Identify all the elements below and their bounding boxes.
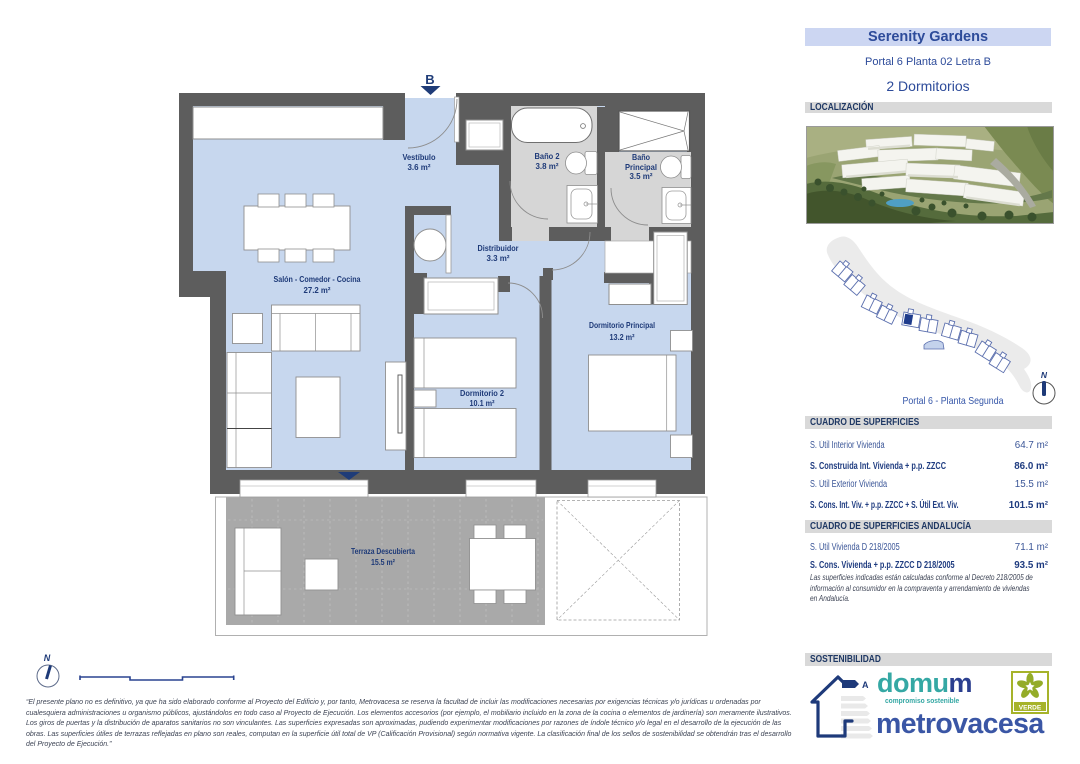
svg-text:3.3 m²: 3.3 m² — [487, 253, 510, 263]
svg-text:Vestíbulo: Vestíbulo — [403, 152, 436, 162]
svg-text:VERDE: VERDE — [1019, 705, 1042, 712]
svg-text:10.1 m²: 10.1 m² — [470, 398, 495, 408]
svg-text:N: N — [44, 653, 51, 663]
svg-text:15.5 m²: 15.5 m² — [371, 557, 395, 567]
svg-text:Baño: Baño — [632, 152, 650, 162]
svg-text:Dormitorio Principal: Dormitorio Principal — [589, 320, 655, 330]
svg-text:3.6 m²: 3.6 m² — [408, 162, 431, 172]
svg-text:27.2 m²: 27.2 m² — [304, 285, 331, 295]
svg-text:Dormitorio 2: Dormitorio 2 — [460, 388, 504, 398]
svg-text:Terraza Descubierta: Terraza Descubierta — [351, 546, 415, 556]
svg-text:Distribuidor: Distribuidor — [478, 243, 520, 253]
svg-text:3.8 m²: 3.8 m² — [536, 161, 559, 171]
svg-text:Baño 2: Baño 2 — [535, 151, 560, 161]
svg-text:N: N — [1041, 370, 1048, 380]
svg-text:Salón - Comedor - Cocina: Salón - Comedor - Cocina — [274, 274, 361, 284]
svg-text:Portal 6 - Planta Segunda: Portal 6 - Planta Segunda — [903, 396, 1004, 407]
svg-text:B: B — [425, 72, 434, 87]
svg-text:A: A — [862, 680, 869, 690]
svg-text:13.2 m²: 13.2 m² — [610, 332, 635, 342]
svg-text:3.5 m²: 3.5 m² — [630, 171, 653, 181]
